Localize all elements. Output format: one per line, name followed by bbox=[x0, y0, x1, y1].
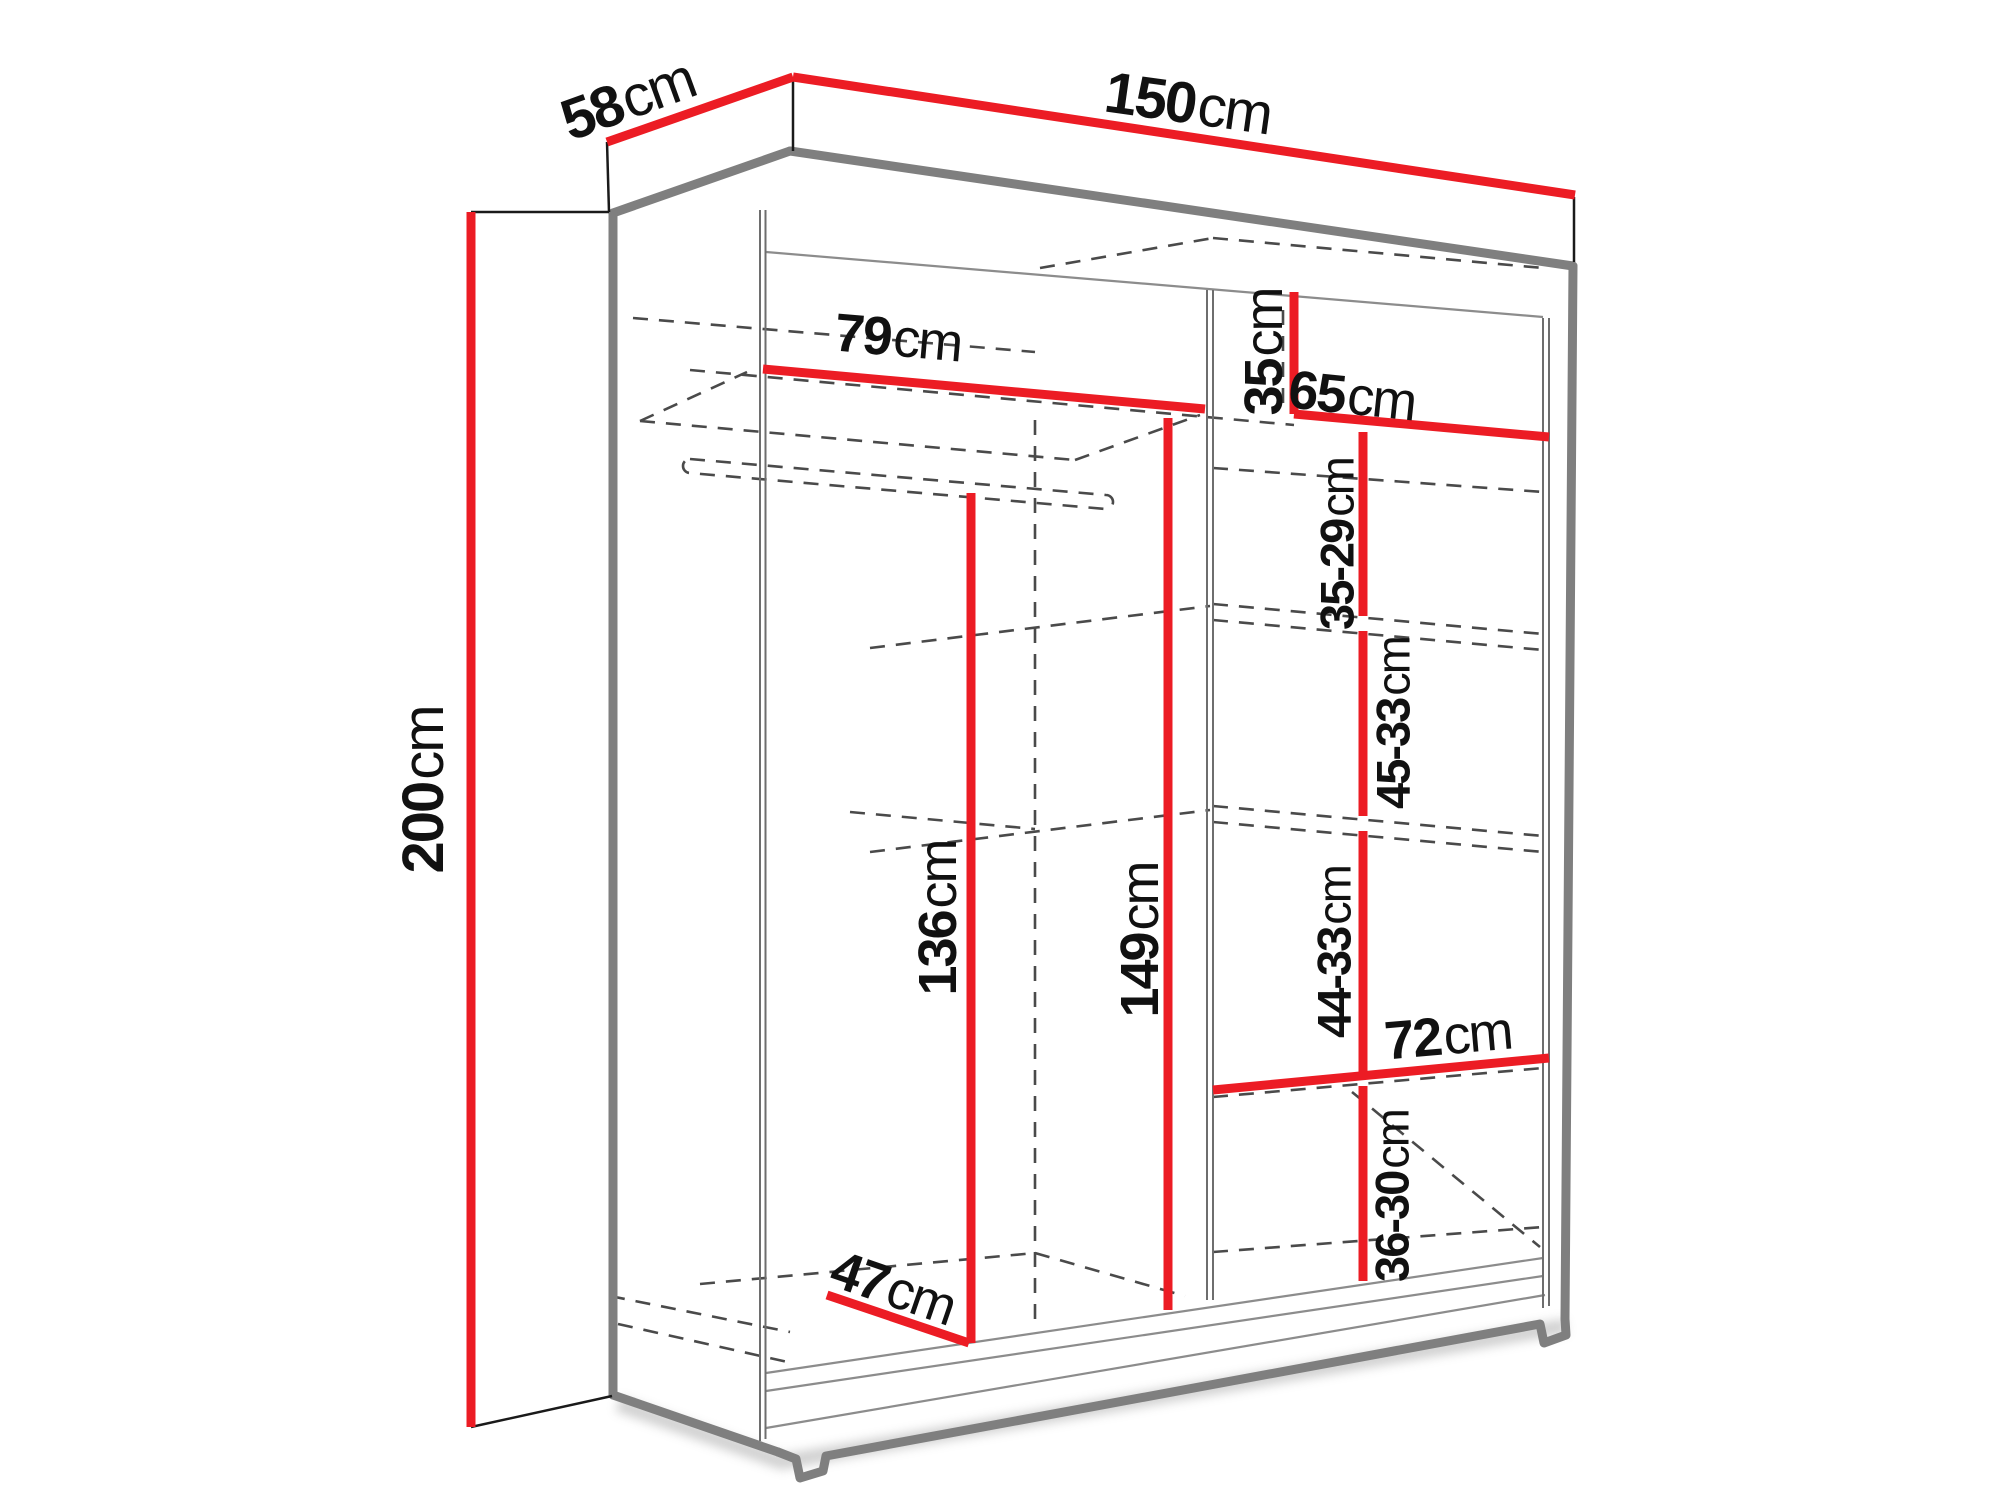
dim-unit: cm bbox=[879, 1258, 963, 1337]
dim-unit: cm bbox=[1366, 1110, 1419, 1169]
dim-label-shelf-gap-middle: 45-33cm bbox=[1370, 637, 1417, 809]
dim-value: 36-30 bbox=[1366, 1172, 1419, 1282]
dim-value: 149 bbox=[1110, 933, 1170, 1017]
dim-label-bottom-shelf-width: 72cm bbox=[1382, 1004, 1513, 1069]
dim-unit: cm bbox=[391, 706, 456, 779]
dim-value: 44-33 bbox=[1308, 928, 1361, 1038]
dim-value: 65 bbox=[1286, 360, 1348, 426]
dim-unit: cm bbox=[1344, 366, 1418, 433]
dim-label-shelf-gap-upper: 35-29cm bbox=[1314, 458, 1361, 630]
dim-unit: cm bbox=[891, 308, 964, 374]
dim-unit: cm bbox=[1110, 862, 1170, 930]
dim-label-hanging-space-height: 136cm bbox=[911, 840, 965, 995]
dim-label-right-section-width: 65cm bbox=[1286, 363, 1418, 430]
dim-label-interior-height: 149cm bbox=[1113, 862, 1167, 1017]
dim-value: 35 bbox=[1234, 359, 1294, 415]
dim-unit: cm bbox=[1194, 73, 1276, 148]
dim-value: 150 bbox=[1101, 60, 1200, 137]
dim-label-depth-top: 58cm bbox=[554, 49, 702, 150]
dim-label-height-total: 200cm bbox=[395, 706, 453, 873]
dim-label-width-total: 150cm bbox=[1101, 64, 1275, 145]
dim-unit: cm bbox=[1311, 458, 1364, 517]
dim-unit: cm bbox=[1367, 637, 1420, 696]
dim-value: 35-29 bbox=[1311, 520, 1364, 630]
dim-unit: cm bbox=[1308, 866, 1361, 925]
dimension-labels: 58cm 150cm 200cm 79cm 35cm 65cm 35-29cm … bbox=[0, 0, 2000, 1500]
dim-label-top-compartment-height: 35cm bbox=[1237, 288, 1291, 415]
dim-label-left-section-width: 79cm bbox=[832, 306, 963, 371]
dim-value: 79 bbox=[832, 303, 893, 368]
wardrobe-dimension-diagram: 58cm 150cm 200cm 79cm 35cm 65cm 35-29cm … bbox=[0, 0, 2000, 1500]
dim-value: 200 bbox=[391, 783, 456, 874]
dim-value: 45-33 bbox=[1367, 699, 1420, 809]
dim-label-shelf-gap-lower: 44-33cm bbox=[1311, 866, 1358, 1038]
dim-unit: cm bbox=[908, 840, 968, 908]
dim-unit: cm bbox=[1441, 1001, 1514, 1067]
dim-label-bottom-compartment-height: 36-30cm bbox=[1369, 1110, 1416, 1282]
dim-label-interior-depth: 47cm bbox=[824, 1242, 962, 1334]
dim-value: 72 bbox=[1382, 1007, 1443, 1072]
dim-unit: cm bbox=[1234, 288, 1294, 356]
dim-value: 136 bbox=[908, 911, 968, 995]
